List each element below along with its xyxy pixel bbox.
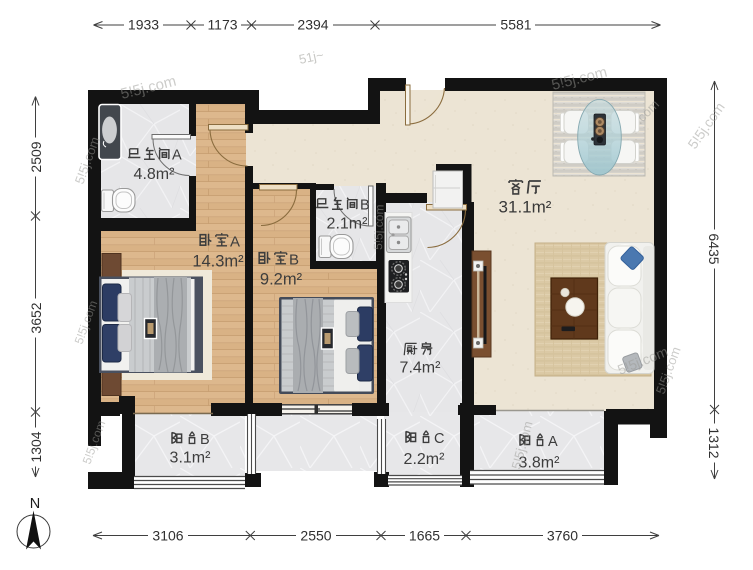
svg-text:B: B	[360, 198, 370, 214]
svg-text:N: N	[30, 496, 40, 512]
svg-text:14.3m²: 14.3m²	[192, 253, 244, 271]
svg-text:B: B	[289, 252, 299, 269]
svg-text:4.8m²: 4.8m²	[134, 166, 176, 183]
svg-text:C: C	[434, 431, 444, 447]
svg-text:7.4m²: 7.4m²	[400, 360, 442, 377]
svg-text:3.1m²: 3.1m²	[170, 450, 212, 467]
svg-text:1173: 1173	[207, 17, 237, 33]
svg-text:A: A	[548, 434, 558, 450]
svg-text:5!5j.com: 5!5j.com	[371, 204, 387, 250]
svg-text:9.2m²: 9.2m²	[260, 271, 303, 289]
svg-text:2.1m²: 2.1m²	[327, 216, 369, 233]
svg-text:B: B	[200, 432, 210, 448]
svg-text:A: A	[230, 234, 240, 251]
svg-text:1304: 1304	[28, 431, 44, 462]
svg-text:1312: 1312	[706, 427, 722, 458]
svg-text:31.1m²: 31.1m²	[499, 198, 552, 217]
svg-text:A: A	[172, 148, 182, 164]
svg-text:2394: 2394	[297, 17, 328, 33]
svg-text:3652: 3652	[28, 302, 44, 333]
svg-text:2.2m²: 2.2m²	[404, 451, 446, 468]
svg-text:3106: 3106	[152, 527, 183, 543]
svg-text:2509: 2509	[28, 141, 44, 172]
svg-text:2550: 2550	[300, 527, 331, 543]
svg-text:3760: 3760	[547, 527, 578, 543]
svg-text:6435: 6435	[706, 233, 722, 264]
svg-text:5581: 5581	[500, 17, 531, 33]
svg-text:1665: 1665	[409, 527, 440, 543]
svg-text:1933: 1933	[128, 17, 159, 33]
